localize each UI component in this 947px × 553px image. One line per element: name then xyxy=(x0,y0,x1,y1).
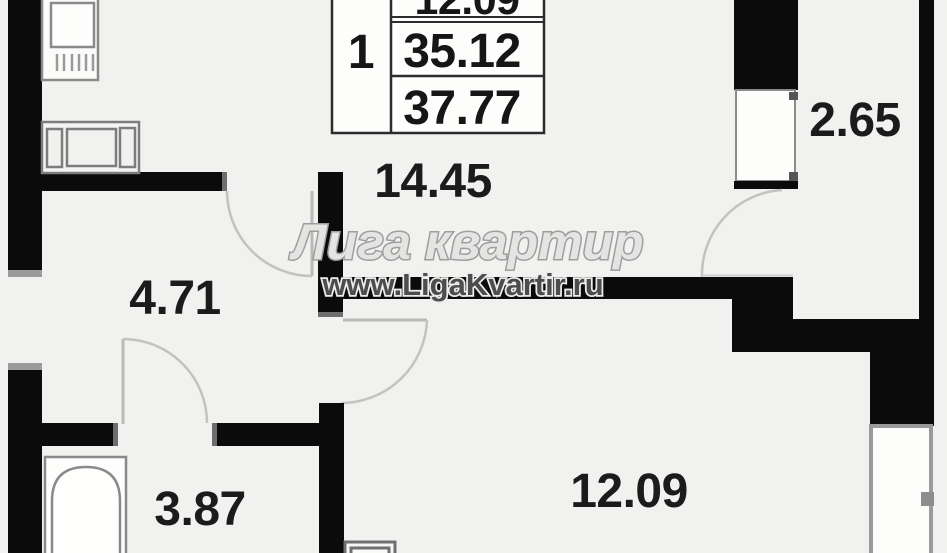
svg-text:12.09: 12.09 xyxy=(414,0,519,24)
svg-text:12.09: 12.09 xyxy=(570,465,688,518)
svg-text:2.65: 2.65 xyxy=(809,94,900,147)
svg-text:1: 1 xyxy=(348,26,374,79)
svg-text:35.12: 35.12 xyxy=(403,25,521,78)
svg-text:4.71: 4.71 xyxy=(129,272,220,325)
svg-text:37.77: 37.77 xyxy=(403,82,521,135)
svg-text:www.LigaKvartir.ru: www.LigaKvartir.ru xyxy=(321,267,603,302)
svg-text:3.87: 3.87 xyxy=(154,483,245,536)
svg-text:Лига квартир: Лига квартир xyxy=(289,214,643,270)
svg-text:14.45: 14.45 xyxy=(374,155,492,208)
